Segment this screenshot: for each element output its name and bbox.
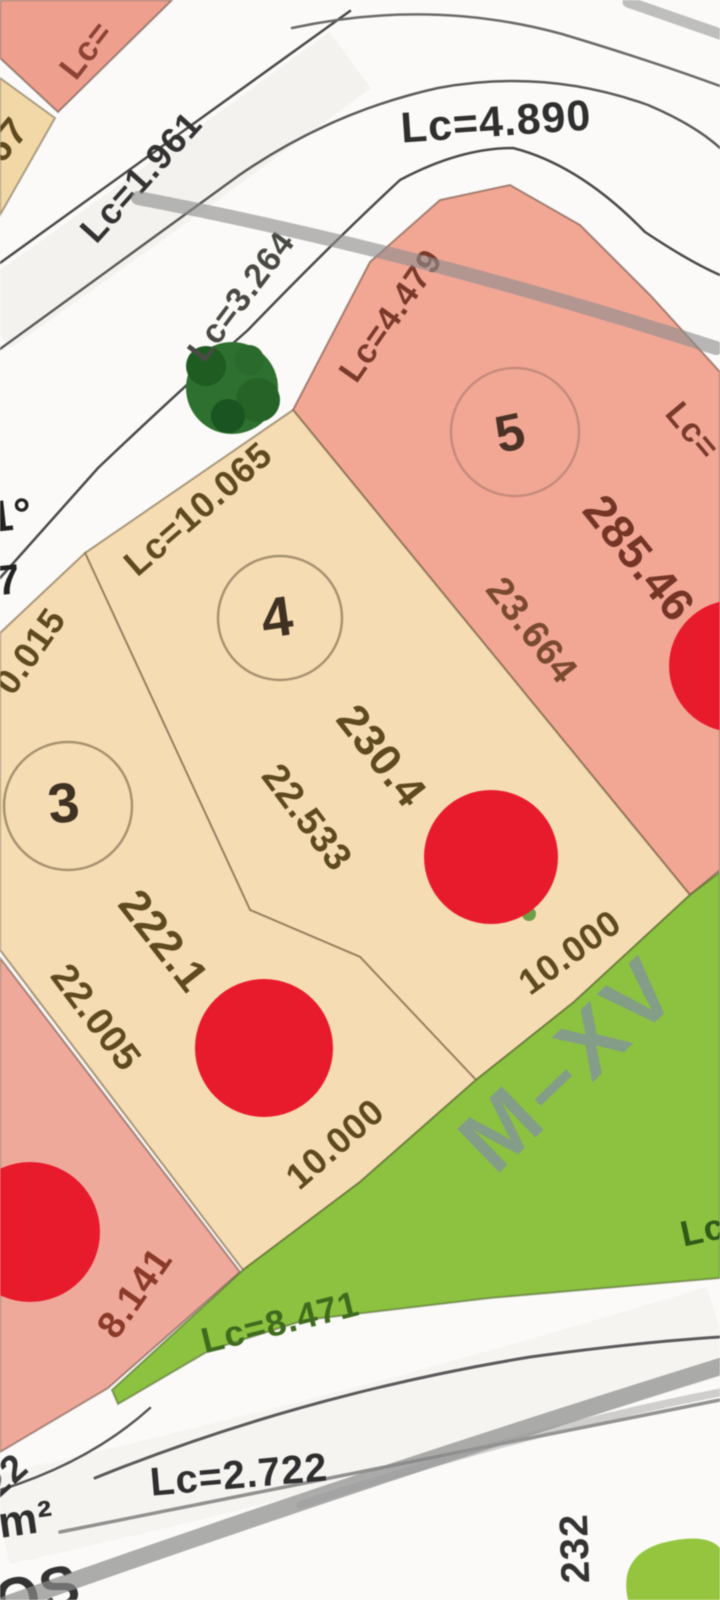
tree-texture — [211, 399, 245, 433]
label-fragment-232: 232 — [552, 1513, 598, 1584]
tree-texture — [234, 345, 264, 375]
map-canvas: Lc= 67 Lc=1.961 Lc=4.890 Lc=3.264 Lc=4.4… — [0, 0, 720, 1600]
label-green-right-fragment: Lc — [677, 1205, 720, 1254]
streak — [628, 2, 720, 34]
label-road-north-curve: Lc=4.890 — [399, 91, 593, 152]
label-fragment-m2: m² — [0, 1491, 57, 1547]
red-marker-2[interactable] — [195, 979, 333, 1117]
green-blob-shape — [626, 1539, 720, 1600]
red-marker-1[interactable] — [424, 790, 558, 924]
cadastral-map: Lc= 67 Lc=1.961 Lc=4.890 Lc=3.264 Lc=4.4… — [0, 0, 720, 1600]
label-fragment-7: 7 — [0, 555, 23, 604]
label-fragment-angle: 1° — [0, 489, 35, 542]
label-lot3-number: 3 — [45, 770, 84, 836]
